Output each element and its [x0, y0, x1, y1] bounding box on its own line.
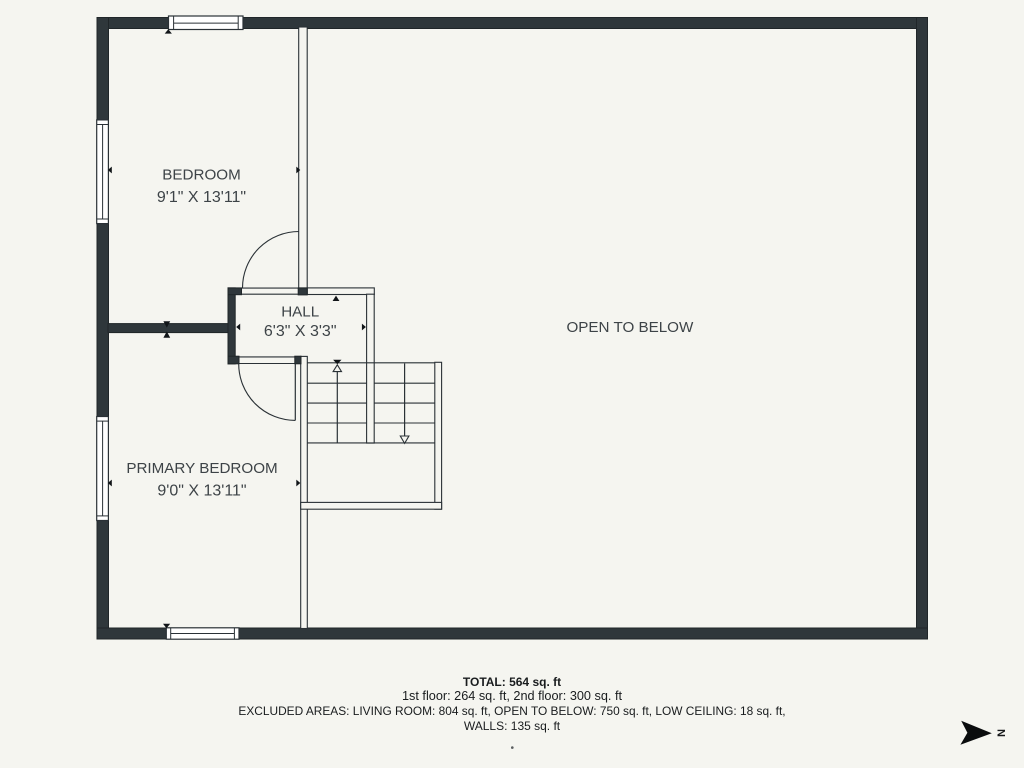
svg-text:HALL: HALL: [281, 303, 319, 320]
svg-text:6'3" X 3'3": 6'3" X 3'3": [264, 323, 337, 340]
svg-text:WALLS: 135 sq. ft: WALLS: 135 sq. ft: [464, 719, 561, 733]
svg-text:TOTAL: 564 sq. ft: TOTAL: 564 sq. ft: [463, 675, 561, 689]
svg-text:OPEN TO BELOW: OPEN TO BELOW: [566, 319, 694, 336]
svg-text:1st floor: 264 sq. ft, 2nd flo: 1st floor: 264 sq. ft, 2nd floor: 300 sq…: [402, 689, 623, 703]
svg-text:9'0" X 13'11": 9'0" X 13'11": [157, 482, 246, 499]
svg-text:PRIMARY BEDROOM: PRIMARY BEDROOM: [126, 460, 277, 477]
svg-text:EXCLUDED AREAS: LIVING ROOM: 8: EXCLUDED AREAS: LIVING ROOM: 804 sq. ft,…: [238, 704, 785, 718]
svg-text:BEDROOM: BEDROOM: [162, 167, 240, 184]
svg-text:N: N: [995, 729, 1007, 737]
svg-text:9'1" X 13'11": 9'1" X 13'11": [157, 189, 246, 206]
